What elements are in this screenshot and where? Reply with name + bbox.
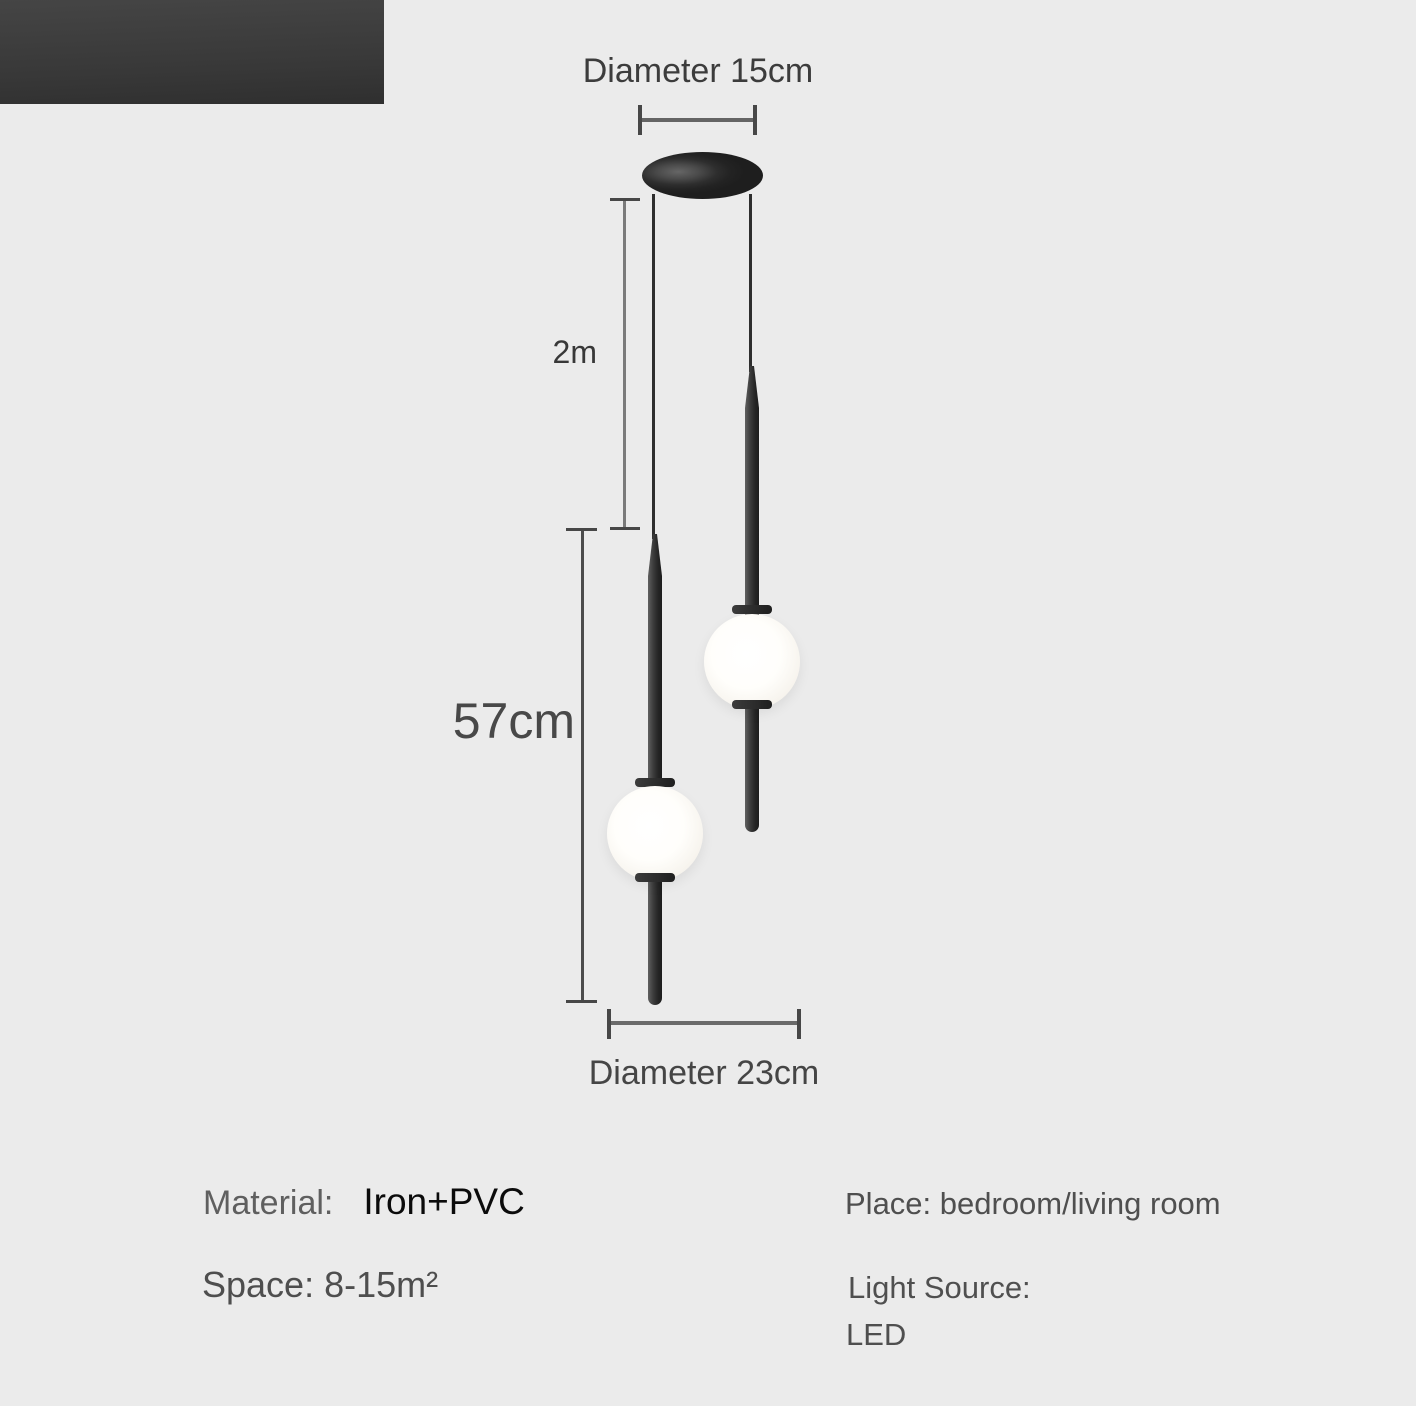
drop-dimension-tick-top	[610, 198, 640, 201]
fixture-dimension-tick-top	[566, 528, 597, 531]
drop-dimension-line	[623, 200, 626, 530]
drop-length-label: 2m	[467, 334, 597, 371]
ceiling-canopy	[642, 152, 763, 199]
drop-dimension-tick-bottom	[610, 527, 640, 530]
suspension-cord-right	[749, 194, 752, 372]
light-source-value: LED	[846, 1317, 906, 1353]
pendant-rod-right	[745, 366, 759, 832]
space-text: Space: 8-15m²	[202, 1264, 438, 1306]
glass-globe-right	[704, 614, 800, 709]
bottom-diameter-label: Diameter 23cm	[529, 1054, 879, 1093]
bottom-dimension-tick-left	[607, 1009, 611, 1039]
top-dimension-tick-right	[753, 105, 757, 135]
material-value: Iron+PVC	[363, 1181, 524, 1222]
glass-globe-left	[607, 786, 703, 881]
material-row: Material:Iron+PVC	[203, 1181, 525, 1223]
fixture-dimension-line	[581, 530, 584, 1003]
top-dimension-line	[639, 118, 757, 122]
fixture-dimension-tick-bottom	[566, 1000, 597, 1003]
top-diameter-label: Diameter 15cm	[523, 52, 873, 91]
pendant-lamp-spec-image: Diameter 15cm 2m 57cm Diameter 23cm Mate…	[0, 0, 1416, 1406]
photo-corner-strip	[0, 0, 384, 104]
top-dimension-tick-left	[638, 105, 642, 135]
material-label: Material:	[203, 1184, 333, 1222]
globe-cap-right-bottom	[732, 700, 772, 709]
fixture-height-label: 57cm	[390, 692, 575, 750]
place-text: Place: bedroom/living room	[845, 1186, 1221, 1222]
pendant-rod-left	[648, 534, 662, 1005]
bottom-dimension-line	[608, 1021, 801, 1025]
bottom-dimension-tick-right	[797, 1009, 801, 1039]
light-source-label: Light Source:	[848, 1270, 1031, 1306]
globe-cap-right-top	[732, 605, 772, 614]
suspension-cord-left	[652, 194, 655, 539]
globe-cap-left-bottom	[635, 873, 675, 882]
